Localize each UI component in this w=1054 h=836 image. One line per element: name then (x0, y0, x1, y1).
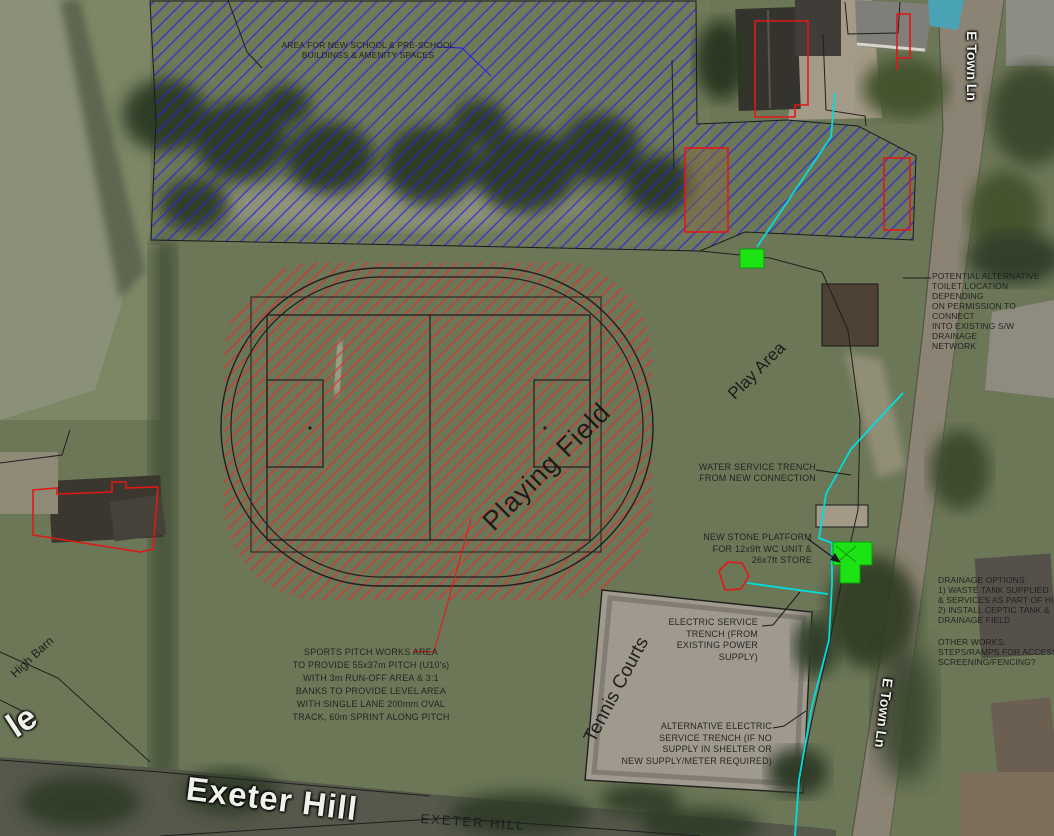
pond (928, 0, 964, 30)
tennis-court (585, 590, 838, 796)
play-structure (822, 284, 878, 346)
sports-works-hatch (224, 262, 652, 600)
site-plan-map: AREA FOR NEW SCHOOL & PRE-SCHOOL BUILDIN… (0, 0, 1054, 836)
map-graphics (0, 0, 1054, 836)
